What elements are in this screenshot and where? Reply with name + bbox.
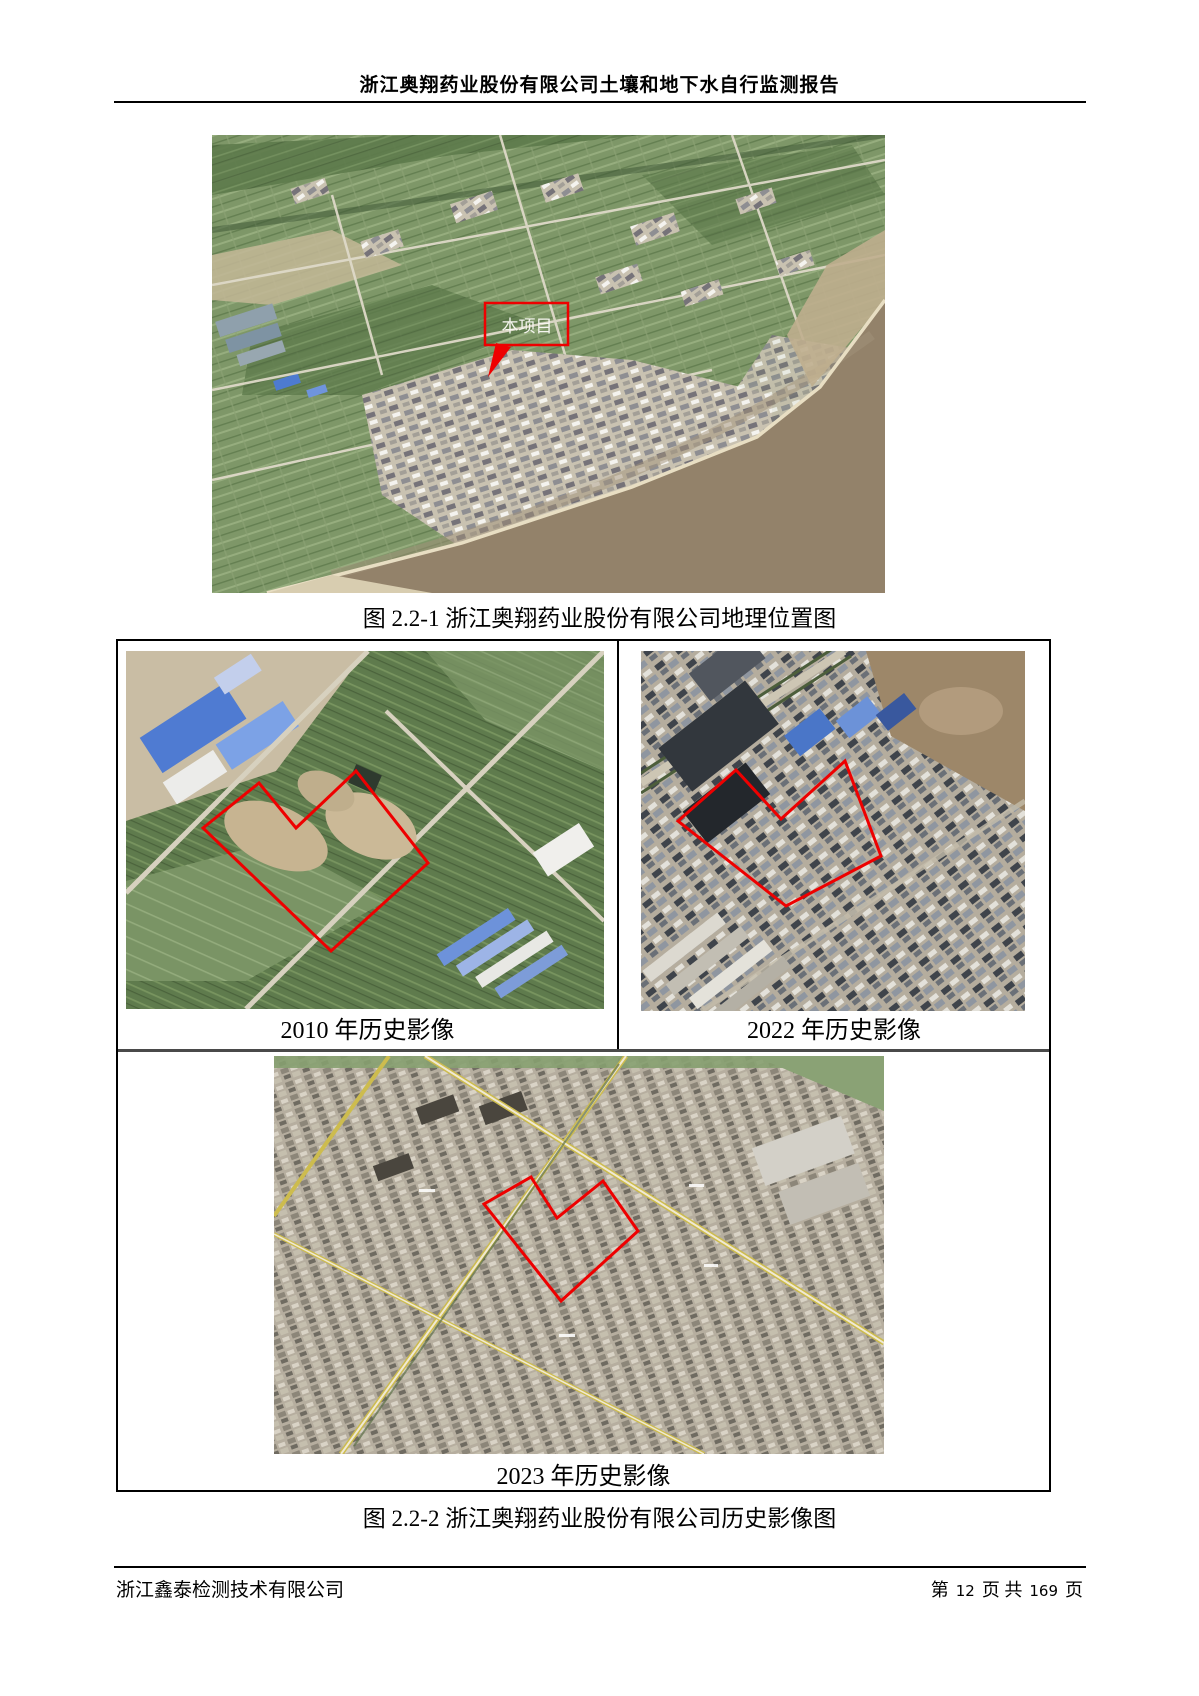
- geo-location-satellite-map: 本项目: [212, 135, 885, 593]
- box-vertical-divider: [617, 641, 619, 1051]
- footer-page-prefix: 第: [931, 1580, 949, 1600]
- footer-page-suffix: 页: [1065, 1580, 1083, 1600]
- footer-page-indicator: 第12页 共169页: [929, 1576, 1085, 1602]
- footer-page-total: 169: [1029, 1582, 1058, 1600]
- footer-rule: [114, 1566, 1086, 1568]
- panel-label-2022: 2022 年历史影像: [619, 1010, 1049, 1045]
- figure1-caption: 图 2.2-1 浙江奥翔药业股份有限公司地理位置图: [0, 599, 1199, 633]
- footer-page-middle: 页 共: [982, 1580, 1023, 1600]
- box-horizontal-divider: [118, 1049, 1049, 1052]
- footer-page-current: 12: [956, 1582, 975, 1600]
- header-rule: [114, 101, 1086, 103]
- figure2-caption: 图 2.2-2 浙江奥翔药业股份有限公司历史影像图: [0, 1499, 1199, 1533]
- history-image-2010: [126, 651, 604, 1009]
- panel-label-2023: 2023 年历史影像: [118, 1456, 1049, 1491]
- panel-label-2010: 2010 年历史影像: [118, 1010, 617, 1045]
- footer-company: 浙江鑫泰检测技术有限公司: [116, 1575, 344, 1602]
- callout-label: 本项目: [502, 317, 553, 336]
- history-image-2022: [641, 651, 1025, 1011]
- geo-map-graphic: 本项目: [212, 135, 885, 593]
- history-image-2023: [274, 1056, 884, 1454]
- report-page: 浙江奥翔药业股份有限公司土壤和地下水自行监测报告: [0, 0, 1199, 1696]
- history-imagery-box: 2010 年历史影像 2022 年历史影像: [116, 639, 1051, 1492]
- page-header-title: 浙江奥翔药业股份有限公司土壤和地下水自行监测报告: [0, 70, 1199, 97]
